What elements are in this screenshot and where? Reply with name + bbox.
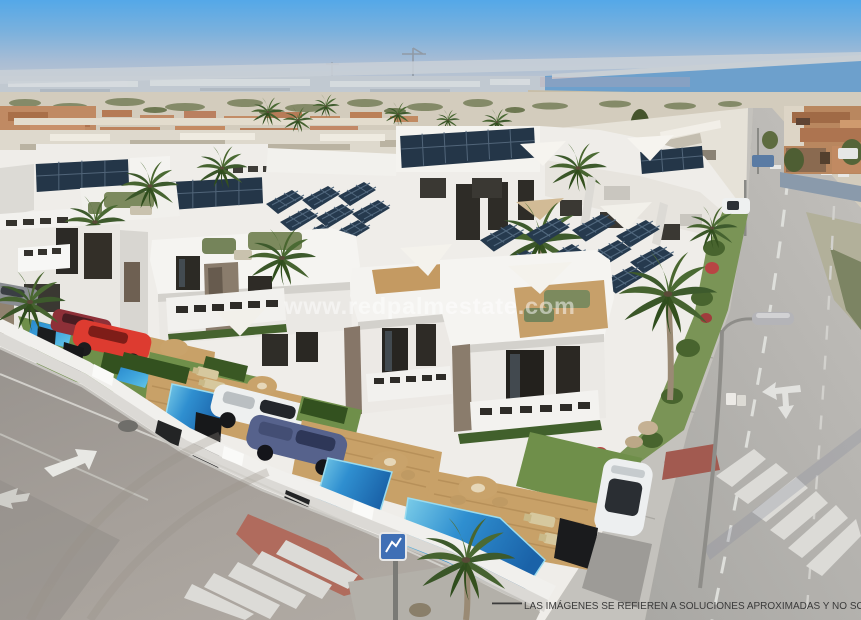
svg-text:www.redpalmestate.com: www.redpalmestate.com: [283, 293, 576, 319]
svg-text:LAS IMÁGENES SE REFIEREN A SOL: LAS IMÁGENES SE REFIEREN A SOLUCIONES AP…: [524, 599, 861, 612]
